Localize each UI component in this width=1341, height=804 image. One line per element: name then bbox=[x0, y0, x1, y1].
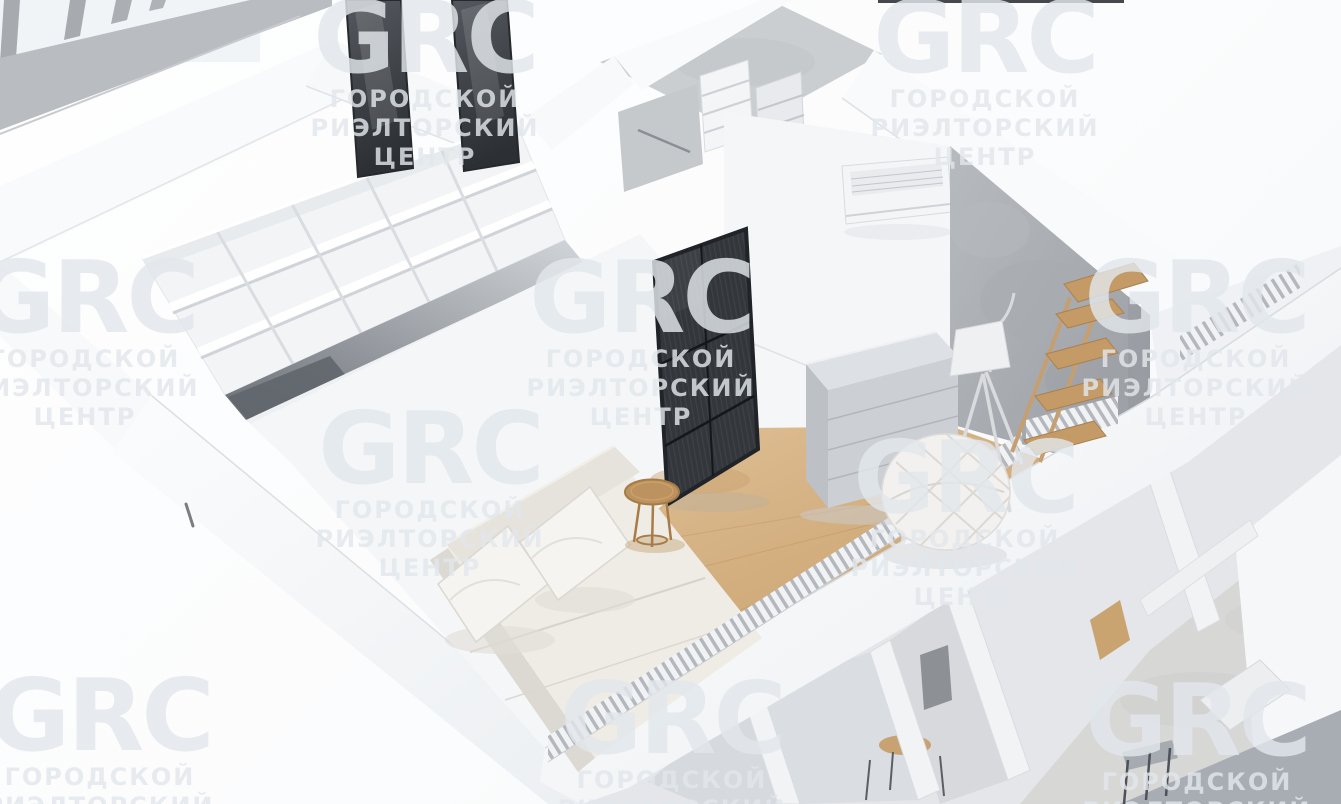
far-wall-edge-line bbox=[878, 0, 1124, 3]
floorplan-3d-render: GRCГОРОДСКОЙРИЭЛТОРСКИЙЦЕНТРGRCГОРОДСКОЙ… bbox=[0, 0, 1341, 804]
air-conditioner bbox=[842, 157, 952, 240]
render-canvas bbox=[0, 0, 1341, 804]
sliding-door-panel bbox=[618, 84, 703, 192]
balcony-chair-silhouette bbox=[920, 645, 952, 710]
lamp-shade bbox=[950, 321, 1010, 376]
